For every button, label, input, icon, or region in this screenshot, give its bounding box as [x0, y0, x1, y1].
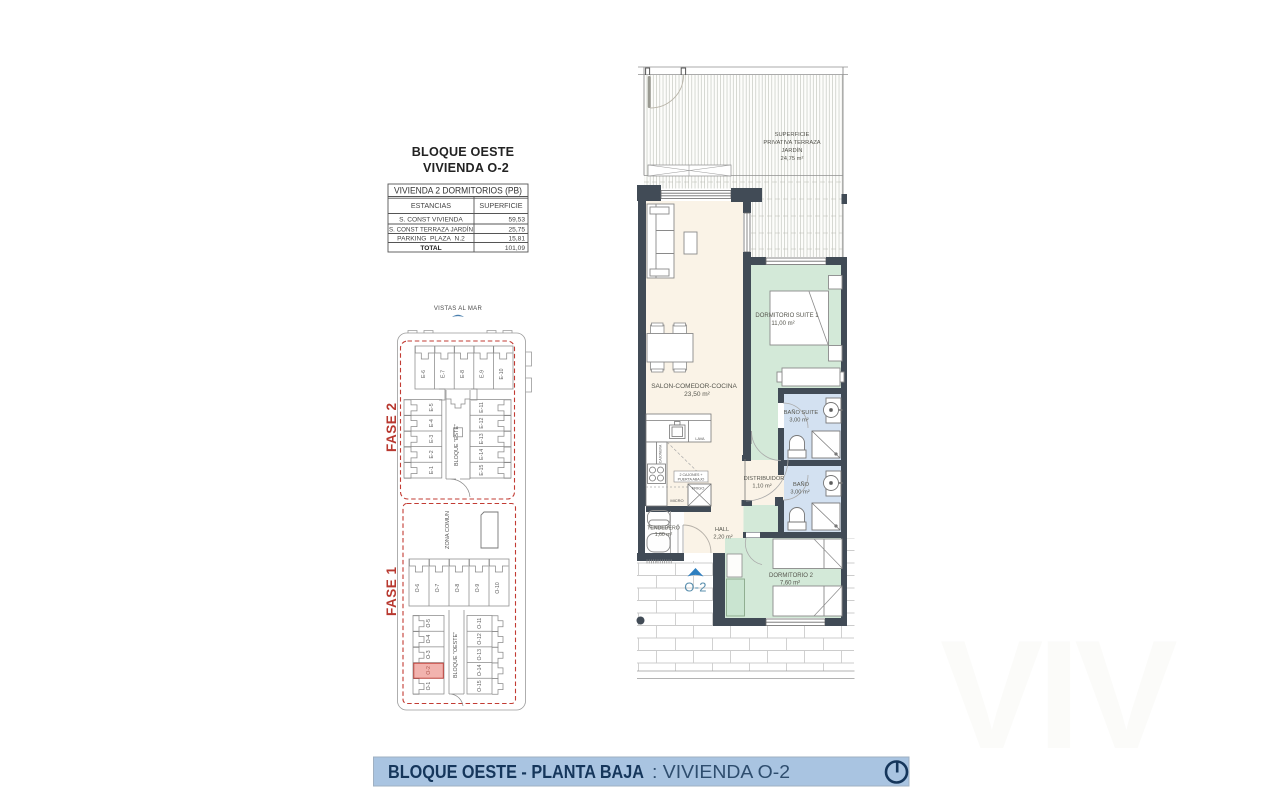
- svg-text:E-6: E-6: [421, 370, 427, 378]
- svg-text:E-8: E-8: [460, 370, 466, 378]
- svg-text:LAVA: LAVA: [695, 437, 705, 441]
- svg-text:JARDÍN: JARDÍN: [782, 147, 803, 154]
- svg-text:BLOQUE "ESTE": BLOQUE "ESTE": [454, 424, 460, 466]
- svg-text:DORMITORIO SUITE 1: DORMITORIO SUITE 1: [755, 313, 819, 319]
- svg-text:VISTAS AL MAR: VISTAS AL MAR: [434, 306, 483, 312]
- svg-text:O-13: O-13: [477, 649, 483, 661]
- svg-text:DISTRIBUIDOR: DISTRIBUIDOR: [744, 476, 785, 482]
- svg-text:SUPERFICIE: SUPERFICIE: [775, 132, 810, 138]
- svg-text:ESTANCIAS: ESTANCIAS: [411, 201, 451, 210]
- svg-text:SALON-COMEDOR-COCINA: SALON-COMEDOR-COCINA: [651, 383, 737, 390]
- svg-text:BAÑO SUITE: BAÑO SUITE: [784, 409, 819, 416]
- svg-text:HALL: HALL: [715, 527, 729, 533]
- svg-text:1,60 m²: 1,60 m²: [655, 532, 673, 538]
- svg-text:SUPERFICIE: SUPERFICIE: [479, 201, 522, 210]
- svg-text:O-1: O-1: [426, 682, 432, 691]
- svg-text:ZONA COMUN: ZONA COMUN: [445, 511, 451, 549]
- svg-text:E-4: E-4: [429, 419, 435, 427]
- svg-text:O-7: O-7: [435, 584, 441, 593]
- svg-text:59,53: 59,53: [508, 217, 525, 224]
- svg-text:15,81: 15,81: [508, 236, 525, 243]
- svg-text:O-3: O-3: [426, 650, 432, 659]
- svg-text:E-14: E-14: [479, 449, 485, 460]
- svg-text:1,10 m²: 1,10 m²: [752, 484, 771, 490]
- svg-text:FASE 2: FASE 2: [384, 402, 399, 452]
- svg-text:TOTAL: TOTAL: [420, 245, 441, 252]
- svg-text:E-1: E-1: [429, 466, 435, 474]
- svg-text:24,75 m²: 24,75 m²: [781, 156, 804, 162]
- svg-text:E-12: E-12: [479, 418, 485, 429]
- svg-text:O-9: O-9: [475, 584, 481, 593]
- svg-text:DORMITORIO 2: DORMITORIO 2: [769, 573, 814, 579]
- svg-text:E-13: E-13: [479, 433, 485, 444]
- svg-text:O-4: O-4: [426, 635, 432, 644]
- svg-text:O-12: O-12: [477, 633, 483, 645]
- svg-text:E-9: E-9: [480, 370, 486, 378]
- svg-text:CAJONERA: CAJONERA: [659, 444, 663, 463]
- svg-text:3,00 m²: 3,00 m²: [790, 490, 809, 496]
- svg-text:O-11: O-11: [477, 618, 483, 629]
- svg-text:O-2: O-2: [426, 666, 432, 675]
- svg-text:E-10: E-10: [499, 368, 505, 379]
- svg-text:VIV: VIV: [940, 608, 1177, 781]
- svg-text:FRIGO: FRIGO: [692, 486, 705, 491]
- svg-text:BAÑO: BAÑO: [793, 481, 810, 488]
- svg-text:S. CONST TERRAZA JARDÍN: S. CONST TERRAZA JARDÍN: [389, 225, 473, 234]
- svg-text:FASE 1: FASE 1: [384, 566, 399, 616]
- svg-text:BLOQUE OESTE: BLOQUE OESTE: [412, 145, 514, 159]
- svg-text:O-15: O-15: [477, 680, 483, 692]
- svg-text:O-6: O-6: [415, 584, 421, 593]
- svg-text:E-15: E-15: [479, 465, 485, 476]
- svg-text:TENDEDERO: TENDEDERO: [647, 526, 680, 532]
- svg-text:E-2: E-2: [429, 450, 435, 458]
- svg-text:BLOQUE "OESTE": BLOQUE "OESTE": [453, 632, 459, 678]
- svg-text:O-10: O-10: [495, 582, 501, 594]
- svg-text:: VIVIENDA O-2: : VIVIENDA O-2: [652, 762, 790, 782]
- svg-text:3,00 m²: 3,00 m²: [789, 418, 808, 424]
- svg-text:O-2: O-2: [684, 580, 707, 595]
- svg-text:E-7: E-7: [440, 370, 446, 378]
- svg-text:E-5: E-5: [429, 403, 435, 411]
- svg-text:S. CONST VIVIENDA: S. CONST VIVIENDA: [399, 217, 463, 224]
- svg-text:101,09: 101,09: [505, 245, 526, 252]
- svg-text:2,20 m²: 2,20 m²: [713, 535, 732, 541]
- svg-text:BLOQUE OESTE - PLANTA BAJA: BLOQUE OESTE - PLANTA BAJA: [388, 762, 644, 782]
- svg-text:7,60 m²: 7,60 m²: [780, 581, 800, 587]
- svg-text:25,75: 25,75: [508, 227, 525, 234]
- svg-text:O-14: O-14: [477, 665, 483, 677]
- svg-text:O-5: O-5: [426, 619, 432, 628]
- svg-text:VIVIENDA 2 DORMITORIOS (PB): VIVIENDA 2 DORMITORIOS (PB): [394, 186, 522, 196]
- svg-text:VIVIENDA O-2: VIVIENDA O-2: [423, 161, 509, 175]
- svg-text:E-3: E-3: [429, 435, 435, 443]
- svg-text:2 CAJONES +: 2 CAJONES +: [679, 473, 702, 477]
- svg-text:PARKING PLAZA N.2: PARKING PLAZA N.2: [397, 236, 465, 243]
- svg-text:E-11: E-11: [479, 402, 485, 413]
- svg-text:PUERTA ABAJO: PUERTA ABAJO: [678, 478, 705, 482]
- svg-text:O-8: O-8: [455, 584, 461, 593]
- svg-text:11,00 m²: 11,00 m²: [771, 321, 794, 327]
- svg-text:MICRO: MICRO: [670, 498, 683, 503]
- svg-text:23,50 m²: 23,50 m²: [684, 391, 710, 398]
- svg-text:PRIVATIVA TERRAZA: PRIVATIVA TERRAZA: [763, 140, 820, 146]
